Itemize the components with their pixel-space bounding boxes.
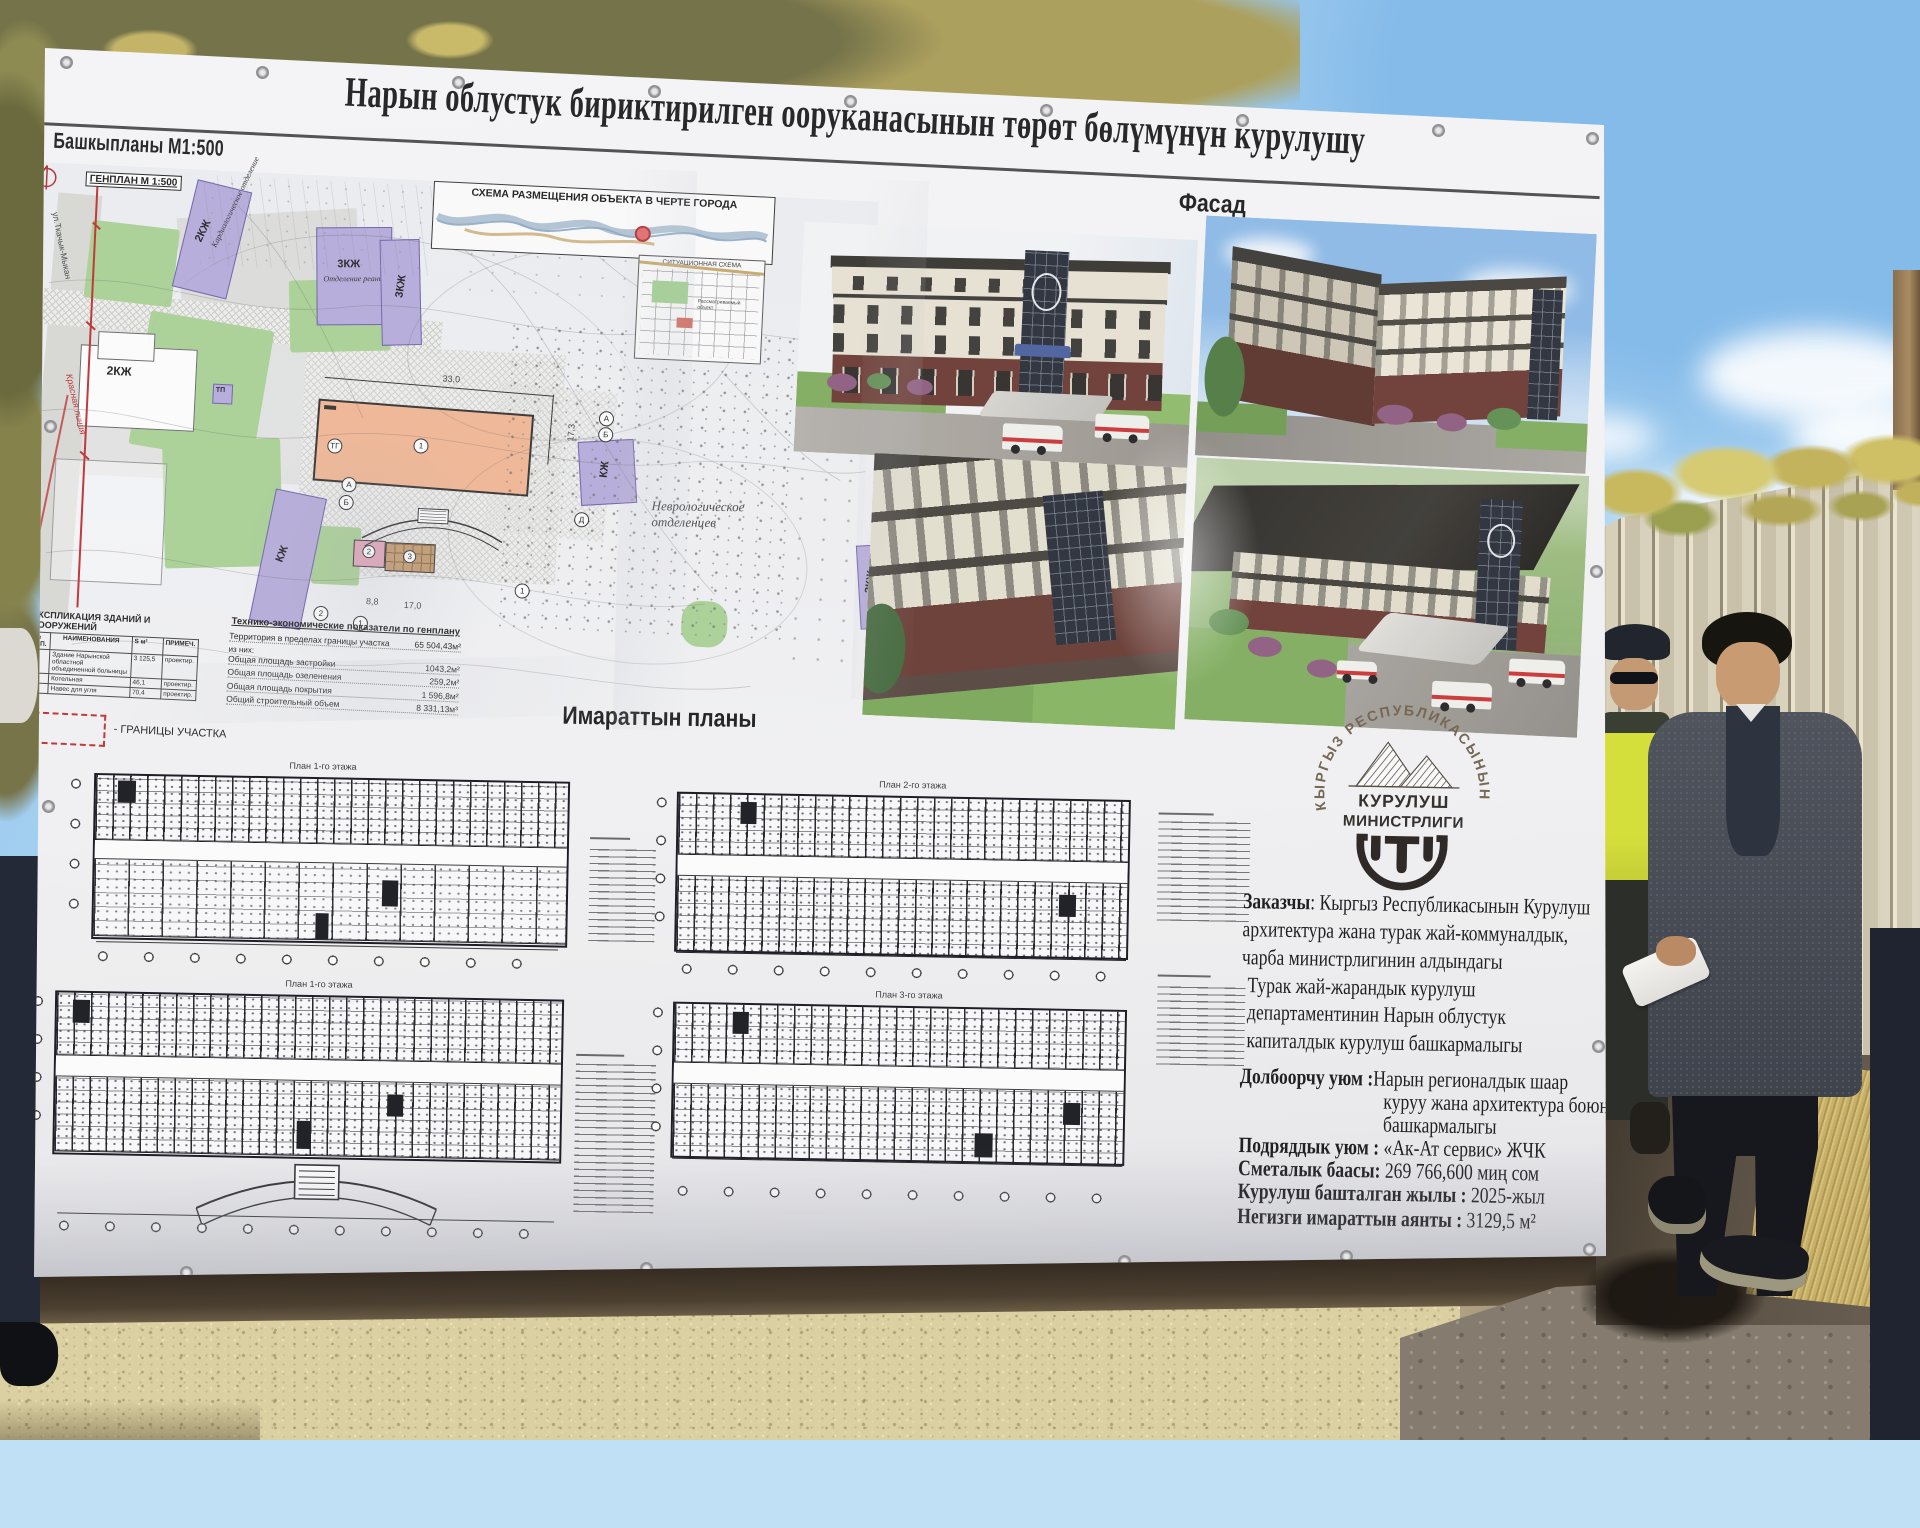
svg-text:МИНИСТРЛИГИ: МИНИСТРЛИГИ: [1343, 813, 1464, 832]
svg-text:КУРУЛУШ: КУРУЛУШ: [1358, 790, 1449, 812]
